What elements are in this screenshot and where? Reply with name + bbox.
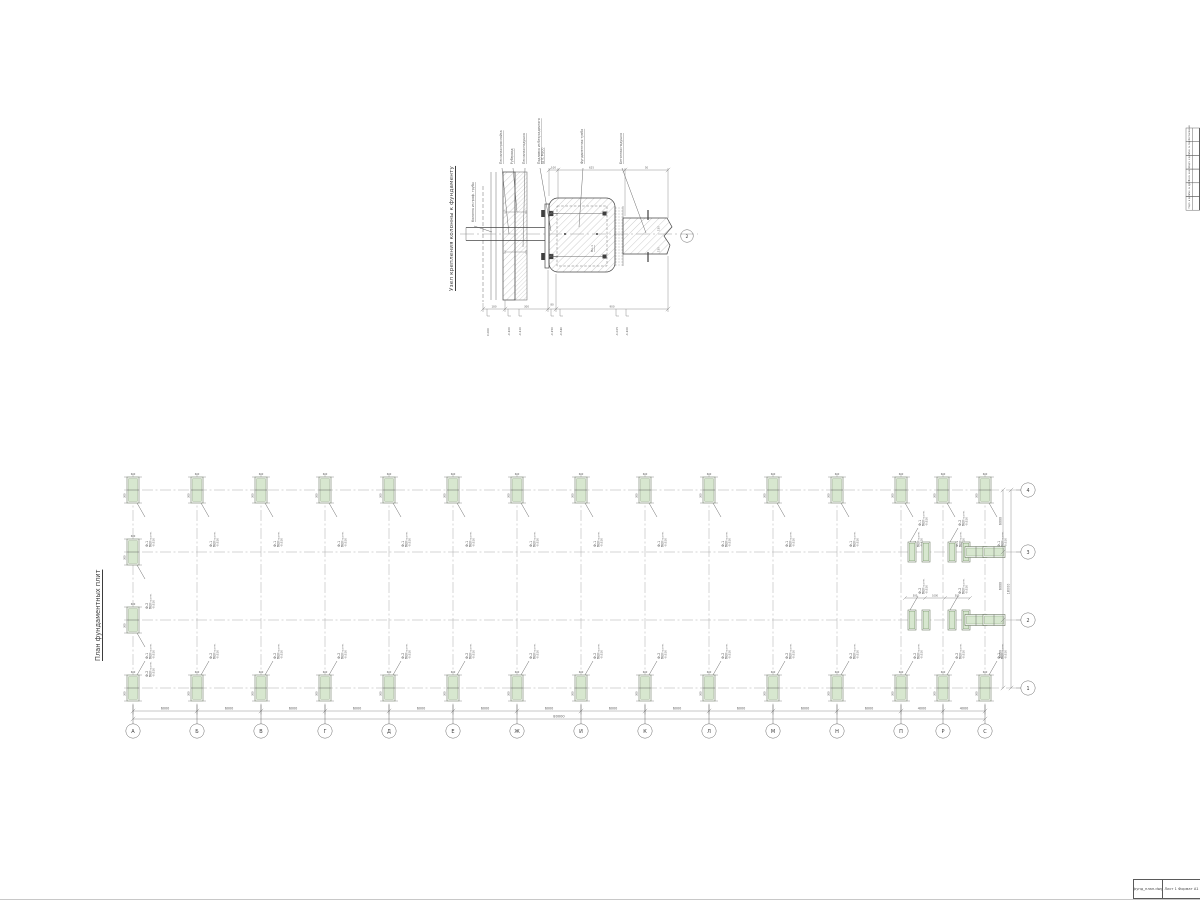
footing-mark-g: Ф-2 (955, 653, 959, 659)
text: 500 (913, 595, 918, 598)
micro-dim: 600 (323, 473, 328, 476)
footing-elev: -0.620 (1004, 538, 1008, 547)
bay-dim-g: 6000 (801, 706, 810, 710)
micro-dim-g: 300 (572, 493, 575, 498)
footing-symbol (983, 547, 1005, 558)
micro-dim: 300 (188, 691, 191, 696)
bay-dim-g: 6000 (417, 706, 426, 710)
axis-letter-g: С (983, 729, 987, 735)
micro-dim-g: 300 (764, 493, 767, 498)
bay-dim-g: 6000 (673, 706, 682, 710)
micro-dim-g: 600 (131, 603, 136, 606)
footing-mark-g: Ф-1 (209, 541, 213, 547)
footing-leader (905, 661, 913, 675)
micro-dim: 300 (934, 691, 937, 696)
micro-dim-g: 300 (124, 691, 127, 696)
text-g: 300 (524, 304, 529, 308)
micro-dim-g: 300 (976, 493, 979, 498)
bay-dim-g: 6000 (481, 706, 490, 710)
callout-text-g: ЦПС М300 (541, 148, 545, 164)
footing-elev: -0.620 (344, 650, 348, 659)
micro-dim: 300 (316, 691, 319, 696)
micro-dim: 600 (835, 473, 840, 476)
micro-dim-g: 600 (707, 671, 712, 674)
footing-mark-g: Ф-2 (785, 653, 789, 659)
elevation-value-g: -0.100 (507, 327, 511, 336)
footing-elev: -0.620 (600, 650, 604, 659)
footing-symbol (948, 542, 956, 562)
footing-label: Ф-2Верх на отм.-0.620 (955, 643, 966, 659)
elevation-value: -1.100 (625, 327, 629, 336)
bay-dim-g: 4000 (918, 706, 927, 710)
axis-number: 4 (1026, 488, 1029, 494)
elevation-value-g: -1.100 (625, 327, 629, 336)
footing-elev: -0.620 (965, 585, 969, 594)
footing-label: Ф-2Верх на отм.-0.620 (593, 643, 604, 659)
text-g: 80 (550, 303, 554, 307)
footing-symbol: 300600 (636, 473, 655, 503)
footing-mark: Ф-1 (465, 541, 469, 547)
micro-dim: 600 (387, 473, 392, 476)
axis-number: 3 (1026, 550, 1029, 556)
bay-dim-g: 6000 (225, 706, 234, 710)
footing-mark: Ф-2 (529, 653, 533, 659)
footing-mark: Ф-2 (465, 653, 469, 659)
footing-mark: Ф-1 (849, 541, 853, 547)
footing-elev: -0.620 (792, 538, 796, 547)
micro-dim-g: 600 (579, 671, 584, 674)
text: 1000 (932, 595, 939, 598)
callout-label: Колонна из проф. трубы (471, 181, 475, 222)
slab-broken (623, 218, 672, 254)
text: 625 (589, 165, 594, 169)
footing-elev-g: -0.620 (408, 538, 412, 547)
footing-label: Ф-1Верх на отм.-0.620 (918, 510, 929, 526)
footing-elev: -0.620 (600, 538, 604, 547)
footing-mark: Ф-2 (401, 653, 405, 659)
footing-leader (137, 661, 145, 675)
footing-elev-g: -0.620 (792, 538, 796, 547)
part-label-g: Пк-1 (590, 245, 594, 252)
axis-letter: Р (941, 729, 944, 735)
dim-150: 150 (657, 226, 661, 231)
footing-mark-g: Ф-2 (721, 653, 725, 659)
axis-letter-g: Б (195, 729, 199, 735)
footing-elev: -0.620 (792, 650, 796, 659)
footing-label: Ф-2Верх на отм.-0.620 (145, 661, 156, 677)
detail-title: Узел крепления колонны к фундаменту (449, 163, 455, 291)
footing-symbol: 300600 (828, 473, 847, 503)
micro-dim: 600 (131, 535, 136, 538)
footing-mark: Ф-1 (529, 541, 533, 547)
footing-elev-g: -0.620 (152, 600, 156, 609)
footing-mark: Ф-2 (657, 653, 661, 659)
axis-number: 1 (1026, 686, 1029, 692)
micro-dim: 300 (700, 691, 703, 696)
dot (596, 233, 598, 235)
micro-dim: 300 (892, 691, 895, 696)
footing-elev: -0.620 (664, 650, 668, 659)
footer-stamp-file: фунд_план.dwg (1134, 880, 1163, 898)
micro-dim: 300 (124, 623, 127, 628)
footing-leader (989, 661, 997, 675)
footing-label: Ф-2Верх на отм.-0.620 (145, 593, 156, 609)
footing-mark: Ф-2 (955, 653, 959, 659)
footing-label: Ф-1Верх на отм.-0.620 (593, 531, 604, 547)
axis-letter: В (259, 729, 263, 735)
footing-symbol: 300600 (572, 671, 591, 701)
bay-dim: 6000 (999, 650, 1003, 658)
footing-elev: -0.620 (216, 538, 220, 547)
axis-letter: Б (195, 729, 199, 735)
micro-dim: 300 (124, 555, 127, 560)
micro-dim-g: 300 (508, 691, 511, 696)
axis-letter-g: И (579, 729, 583, 735)
bay-dim-g: 6000 (737, 706, 746, 710)
micro-dim: 300 (976, 493, 979, 498)
footing-leader (457, 503, 465, 517)
footing-label: Ф-2Верх на отм.-0.620 (209, 643, 220, 659)
elevation-value-g: -1.025 (615, 327, 619, 336)
micro-dim: 600 (323, 671, 328, 674)
footing-label: Ф-1Верх на отм.-0.620 (529, 531, 540, 547)
micro-dim: 600 (131, 671, 136, 674)
bay-dim: 6000 (865, 706, 874, 710)
callout-label: Подливка из безусадочногоЦПС М300 (537, 118, 545, 164)
footing-elev: -0.620 (728, 538, 732, 547)
layer-band (503, 172, 515, 300)
elevation-value: -1.025 (615, 327, 619, 336)
callout-text-g: Песчаная подушка (522, 133, 526, 164)
footing-mark-g: Ф-2 (958, 520, 962, 526)
footing-elev-g: -0.620 (216, 538, 220, 547)
footing-mark-g: Ф-1 (273, 541, 277, 547)
micro-dim-g: 600 (941, 473, 946, 476)
elevation-value-g: -0.150 (550, 327, 554, 336)
micro-dim-g: 600 (835, 671, 840, 674)
footing-mark: Ф-1 (401, 541, 405, 547)
elevation-value: -0.100 (507, 327, 511, 336)
micro-dim-g: 300 (828, 691, 831, 696)
axis-letter: Н (835, 729, 839, 735)
footing-label: Ф-2Верх на отм.-0.620 (918, 578, 929, 594)
anchor-head (603, 212, 607, 216)
footing-elev: -0.620 (856, 538, 860, 547)
footing-leader (585, 661, 593, 675)
footing-leader (947, 661, 955, 675)
frame-cell-label: Подп. и дата (1188, 152, 1191, 168)
micro-dim: 600 (195, 473, 200, 476)
footing-elev-g: -0.620 (152, 668, 156, 677)
footing-symbol: 300600 (188, 671, 207, 701)
micro-dim-g: 300 (976, 691, 979, 696)
footing-elev: -0.620 (408, 650, 412, 659)
footing-label: Ф-1Верх на отм.-0.620 (721, 531, 732, 547)
footing-symbol (922, 610, 930, 630)
footing-mark-g: Ф-1 (918, 520, 922, 526)
total-dim: 18000 (1007, 584, 1011, 595)
footing-elev-g: -0.620 (152, 650, 156, 659)
footing-label: Ф-2Верх на отм.-0.620 (913, 643, 924, 659)
footing-mark: Ф-2 (273, 653, 277, 659)
micro-dim-g: 300 (380, 493, 383, 498)
micro-dim: 600 (899, 671, 904, 674)
elevation-value: -0.120 (518, 327, 522, 336)
footing-elev: -0.620 (1004, 650, 1008, 659)
micro-dim: 300 (934, 493, 937, 498)
bay-dim: 6000 (417, 706, 426, 710)
footing-mark-g: Ф-1 (657, 541, 661, 547)
micro-dim: 300 (764, 493, 767, 498)
micro-dim-g: 300 (636, 493, 639, 498)
micro-dim-g: 300 (636, 691, 639, 696)
footer-stamp: фунд_план.dwg Лист 1 Формат А1 (1133, 879, 1200, 899)
micro-dim-g: 600 (195, 671, 200, 674)
micro-dim-g: 600 (131, 473, 136, 476)
micro-dim-g: 300 (124, 623, 127, 628)
footing-label: Ф-1Верх на отм.-0.620 (849, 531, 860, 547)
footing-symbol: 300600 (700, 473, 719, 503)
dim-150: 150 (657, 247, 661, 252)
footing-symbol: 300600 (252, 473, 271, 503)
micro-dim-g: 300 (892, 691, 895, 696)
footing-leader (265, 503, 273, 517)
footing-elev-g: -0.620 (664, 538, 668, 547)
footing-elev: -0.620 (152, 600, 156, 609)
micro-dim-g: 600 (643, 473, 648, 476)
axis-number-g: 1 (1026, 686, 1029, 692)
micro-dim: 300 (188, 493, 191, 498)
micro-dim-g: 300 (124, 555, 127, 560)
footing-mark-g: Ф-2 (529, 653, 533, 659)
micro-dim-g: 300 (124, 493, 127, 498)
micro-dim-g: 600 (451, 473, 456, 476)
fg (949, 611, 955, 629)
frame-cell-label: Согласовано (1188, 125, 1191, 140)
footing-label: Ф-1Верх на отм.-0.620 (465, 531, 476, 547)
footing-elev: -0.620 (472, 538, 476, 547)
footer-stamp-sheet: Лист 1 Формат А1 (1163, 880, 1200, 898)
drawing-sheet: 150150Пк-12Колонна из проф. трубыПесчана… (0, 0, 1200, 900)
micro-dim: 300 (700, 493, 703, 498)
footing-label: Ф-1Верх на отм.-0.620 (145, 643, 156, 659)
footing-symbol: 300600 (508, 671, 527, 701)
micro-dim-g: 600 (131, 671, 136, 674)
footing-elev-g: -0.620 (728, 538, 732, 547)
bay-dim: 6000 (801, 706, 810, 710)
callout-text: Бетонная подушка (619, 133, 623, 164)
micro-dim: 600 (195, 671, 200, 674)
text: 50 (645, 165, 649, 169)
footing-elev-g: -0.620 (728, 650, 732, 659)
footing-elev-g: -0.620 (965, 517, 969, 526)
axis-letter-g: П (899, 729, 903, 735)
footing-symbol: 300600 (976, 473, 995, 503)
layer-band (515, 172, 527, 300)
fg (923, 543, 929, 561)
frame-cell-label-g: Подп. и дата (1188, 193, 1191, 209)
axis-number: 2 (1026, 618, 1029, 624)
footing-label: Ф-1Верх на отм.-0.620 (209, 531, 220, 547)
footing-symbol: 300600 (124, 603, 143, 633)
footing-elev: -0.620 (925, 517, 929, 526)
bay-dim: 6000 (673, 706, 682, 710)
footing-elev: -0.620 (925, 585, 929, 594)
micro-dim: 600 (835, 671, 840, 674)
micro-dim-g: 600 (323, 671, 328, 674)
callout-text: Песчаная прослойка (499, 130, 503, 164)
bay-dim: 6000 (999, 517, 1003, 525)
footing-leader (137, 633, 145, 647)
frame-cell-label: Взам. инв. № (1188, 166, 1191, 181)
footing-mark-g: Ф-1 (849, 541, 853, 547)
footing-symbol: 300600 (976, 671, 995, 701)
axis-letter-g: Ж (514, 729, 520, 735)
callout-label: Фундаментная тумба (580, 129, 584, 164)
footing-elev: -0.620 (280, 650, 284, 659)
axis-letter: Ж (514, 729, 520, 735)
micro-dim-g: 300 (316, 493, 319, 498)
micro-dim-g: 300 (572, 691, 575, 696)
micro-dim: 300 (636, 493, 639, 498)
axis-letter: С (983, 729, 987, 735)
callout-text-g: Фундаментная тумба (580, 129, 584, 164)
footing-elev-g: -0.620 (600, 650, 604, 659)
text: 80 (550, 303, 554, 307)
footing-label: Ф-2Верх на отм.-0.620 (958, 578, 969, 594)
bay-dim-g: 6000 (999, 517, 1003, 525)
footing-label: Ф-1Верх на отм.-0.620 (997, 531, 1008, 547)
axis-letter-g: А (131, 729, 135, 735)
bolt (541, 253, 545, 260)
text-g: 50 (645, 165, 649, 169)
footing-elev-g: -0.620 (344, 650, 348, 659)
footing-leader (649, 661, 657, 675)
footing-mark: Ф-1 (657, 541, 661, 547)
dim-150-g: 150 (657, 226, 661, 231)
footing-leader (950, 528, 958, 542)
frame-cell-label-g: Инв. № подл. (1188, 138, 1191, 153)
axis-letter: М (771, 729, 775, 735)
footing-mark-g: Ф-2 (273, 653, 277, 659)
frame-cell-label-g: Подп. и дата (1188, 152, 1191, 168)
footing-elev: -0.620 (152, 538, 156, 547)
footing-mark-g: Ф-2 (465, 653, 469, 659)
footing-label: Ф-2Верх на отм.-0.620 (273, 643, 284, 659)
footing-elev: -0.620 (408, 538, 412, 547)
dim-150-g: 150 (657, 247, 661, 252)
bay-dim: 6000 (737, 706, 746, 710)
footing-symbol: 300600 (444, 671, 463, 701)
axis-letter: П (899, 729, 903, 735)
footing-mark: Ф-2 (958, 520, 962, 526)
footing-label: Ф-1Верх на отм.-0.620 (785, 531, 796, 547)
micro-dim: 600 (451, 671, 456, 674)
footing-symbol: 300600 (508, 473, 527, 503)
micro-dim-g: 300 (700, 493, 703, 498)
micro-dim: 600 (643, 671, 648, 674)
text: 100 (551, 165, 556, 169)
footing-elev-g: -0.620 (152, 538, 156, 547)
bay-dim-g: 4000 (960, 706, 969, 710)
text: 900 (610, 304, 615, 308)
footing-leader (521, 661, 529, 675)
axis-number-g: 4 (1026, 488, 1029, 494)
frame-cell-label: Инв. № подл. (1188, 138, 1191, 153)
footing-elev-g: -0.620 (280, 650, 284, 659)
axis-letter: Е (451, 729, 454, 735)
section-mark: 2 (686, 234, 689, 240)
footing-leader (329, 503, 337, 517)
callout-text-g: Рубероид (510, 148, 514, 164)
micro-dim-g: 300 (444, 493, 447, 498)
footing-mark-g: Ф-1 (465, 541, 469, 547)
frame-cell-label-g: Взам. инв. № (1188, 166, 1191, 181)
footing-label: Ф-2Верх на отм.-0.620 (958, 510, 969, 526)
footing-mark-g: Ф-1 (785, 541, 789, 547)
callout-text-g: Песчаная прослойка (499, 130, 503, 164)
micro-dim: 600 (259, 473, 264, 476)
micro-dim: 300 (764, 691, 767, 696)
frame-cell-label-g: Согласовано (1188, 125, 1191, 140)
footing-leader (777, 661, 785, 675)
footing-label: Ф-1Верх на отм.-0.620 (273, 531, 284, 547)
footing-elev: -0.620 (152, 650, 156, 659)
footing-mark: Ф-1 (785, 541, 789, 547)
fg (923, 611, 929, 629)
micro-dim-g: 300 (934, 493, 937, 498)
axis-number-g: 2 (1026, 618, 1029, 624)
footing-leader (905, 503, 913, 517)
footing-symbol: 300600 (252, 671, 271, 701)
bay-dim-g: 6000 (161, 706, 170, 710)
footing-symbol: 300600 (764, 671, 783, 701)
micro-dim-g: 300 (188, 493, 191, 498)
footing-mark: Ф-2 (209, 653, 213, 659)
footing-mark: Ф-1 (209, 541, 213, 547)
axis-letter-g: Р (941, 729, 944, 735)
footing-label: Ф-1Верх на отм.-0.620 (145, 531, 156, 547)
micro-dim: 300 (892, 493, 895, 498)
footing-mark-g: Ф-1 (997, 541, 1001, 547)
footing-leader (989, 503, 997, 517)
bay-dim: 4000 (960, 706, 969, 710)
micro-dim: 600 (899, 473, 904, 476)
footing-elev: -0.620 (344, 538, 348, 547)
micro-dim: 600 (515, 671, 520, 674)
footing-mark-g: Ф-2 (913, 653, 917, 659)
footing-mark: Ф-2 (849, 653, 853, 659)
footing-elev-g: -0.620 (1004, 538, 1008, 547)
fg (949, 543, 955, 561)
micro-dim: 300 (444, 691, 447, 696)
micro-dim-g: 600 (515, 671, 520, 674)
footing-mark: Ф-1 (997, 541, 1001, 547)
micro-dim: 300 (252, 493, 255, 498)
axis-letter-g: М (771, 729, 775, 735)
footing-symbol: 300600 (124, 535, 143, 565)
axis-letter: А (131, 729, 135, 735)
micro-dim: 600 (579, 671, 584, 674)
bay-dim-g: 6000 (609, 706, 618, 710)
micro-dim: 300 (380, 493, 383, 498)
footing-elev: -0.620 (536, 538, 540, 547)
footing-elev-g: -0.620 (536, 538, 540, 547)
micro-dim: 600 (983, 473, 988, 476)
elevation-value: -0.640 (559, 327, 563, 336)
elevation-value: 0.000 (486, 328, 490, 336)
micro-dim: 300 (828, 691, 831, 696)
